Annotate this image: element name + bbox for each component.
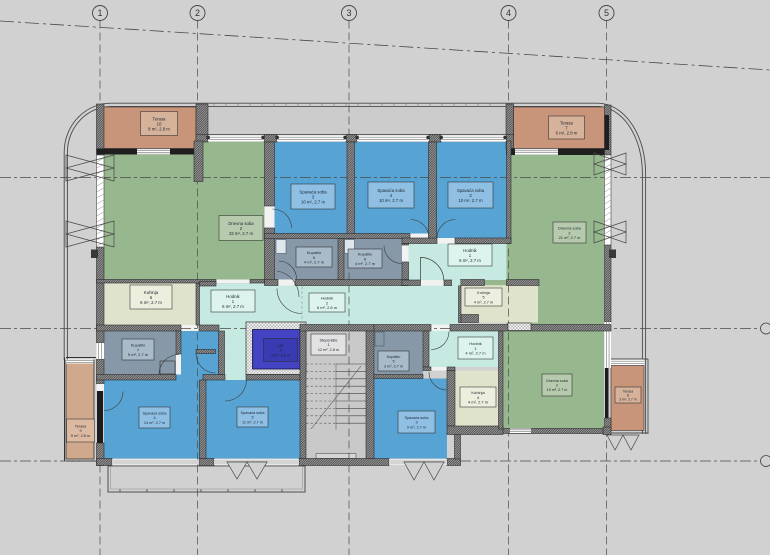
svg-text:14 m², 2.7 m: 14 m², 2.7 m [144,421,165,425]
svg-text:5: 5 [482,296,484,300]
svg-text:Spavaća soba: Spavaća soba [142,412,167,416]
svg-text:3 m², 2.8 m: 3 m², 2.8 m [271,353,290,357]
svg-text:6 m², 2.6 m: 6 m², 2.6 m [317,305,338,310]
svg-text:10 m², 2.7 m: 10 m², 2.7 m [379,198,404,203]
svg-text:2: 2 [195,8,200,18]
svg-text:Spavaća soba: Spavaća soba [240,411,265,415]
svg-text:4 m², 2.7 m: 4 m², 2.7 m [465,351,486,356]
svg-text:6 m², 2.7 m: 6 m², 2.7 m [459,258,481,263]
svg-text:5 m², 2.7 m: 5 m², 2.7 m [128,352,149,357]
svg-text:6 m², 2.8 m: 6 m², 2.8 m [556,131,578,136]
svg-text:Spavaća soba: Spavaća soba [404,416,429,420]
svg-text:4 m², 2.7 m: 4 m², 2.7 m [304,260,325,265]
svg-text:3: 3 [346,8,351,18]
svg-text:1: 1 [97,8,102,18]
svg-text:10 m², 2.7 m: 10 m², 2.7 m [301,200,326,205]
svg-text:11 m², 2.7 m: 11 m², 2.7 m [242,420,263,424]
svg-text:6 m², 2.7 m: 6 m², 2.7 m [140,300,162,305]
svg-text:6 m², 2.7 m: 6 m², 2.7 m [222,304,244,309]
svg-text:5: 5 [604,8,609,18]
svg-text:4: 4 [506,8,511,18]
svg-text:9: 9 [79,429,81,433]
svg-text:Dnevna soba: Dnevna soba [546,379,569,383]
svg-text:21 m², 2.7 m: 21 m², 2.7 m [559,235,581,240]
svg-text:3: 3 [415,421,417,425]
svg-text:4 m², 2.7 m: 4 m², 2.7 m [468,400,489,405]
svg-text:Stepenište: Stepenište [320,339,338,343]
svg-text:5 m², 2.8 m: 5 m², 2.8 m [71,434,90,438]
svg-text:9 m², 2.7 m: 9 m², 2.7 m [407,425,426,429]
svg-text:19 m², 2.7 m: 19 m², 2.7 m [547,388,568,392]
svg-text:Kupatilo: Kupatilo [387,355,401,359]
svg-text:Terasa: Terasa [75,425,87,429]
svg-text:5: 5 [251,416,253,420]
svg-text:8 m², 2.8 m: 8 m², 2.8 m [148,127,170,132]
svg-text:32 m², 2.7 m: 32 m², 2.7 m [229,231,254,236]
svg-text:4: 4 [153,416,155,420]
svg-text:12 m², 2.8 m: 12 m², 2.8 m [318,348,339,352]
svg-text:1: 1 [327,343,329,347]
svg-text:10 m², 2.7 m: 10 m², 2.7 m [458,198,483,203]
svg-text:3 m², 2.7 m: 3 m², 2.7 m [619,398,636,402]
svg-text:4 m², 2.7 m: 4 m², 2.7 m [355,261,376,266]
svg-text:5: 5 [392,360,394,364]
svg-text:3: 3 [279,349,281,353]
svg-text:Kuhinja: Kuhinja [477,291,491,295]
svg-text:3 m², 2.7 m: 3 m², 2.7 m [384,364,403,368]
svg-text:2: 2 [556,384,558,388]
svg-text:4 m², 2.7 m: 4 m², 2.7 m [474,300,493,304]
